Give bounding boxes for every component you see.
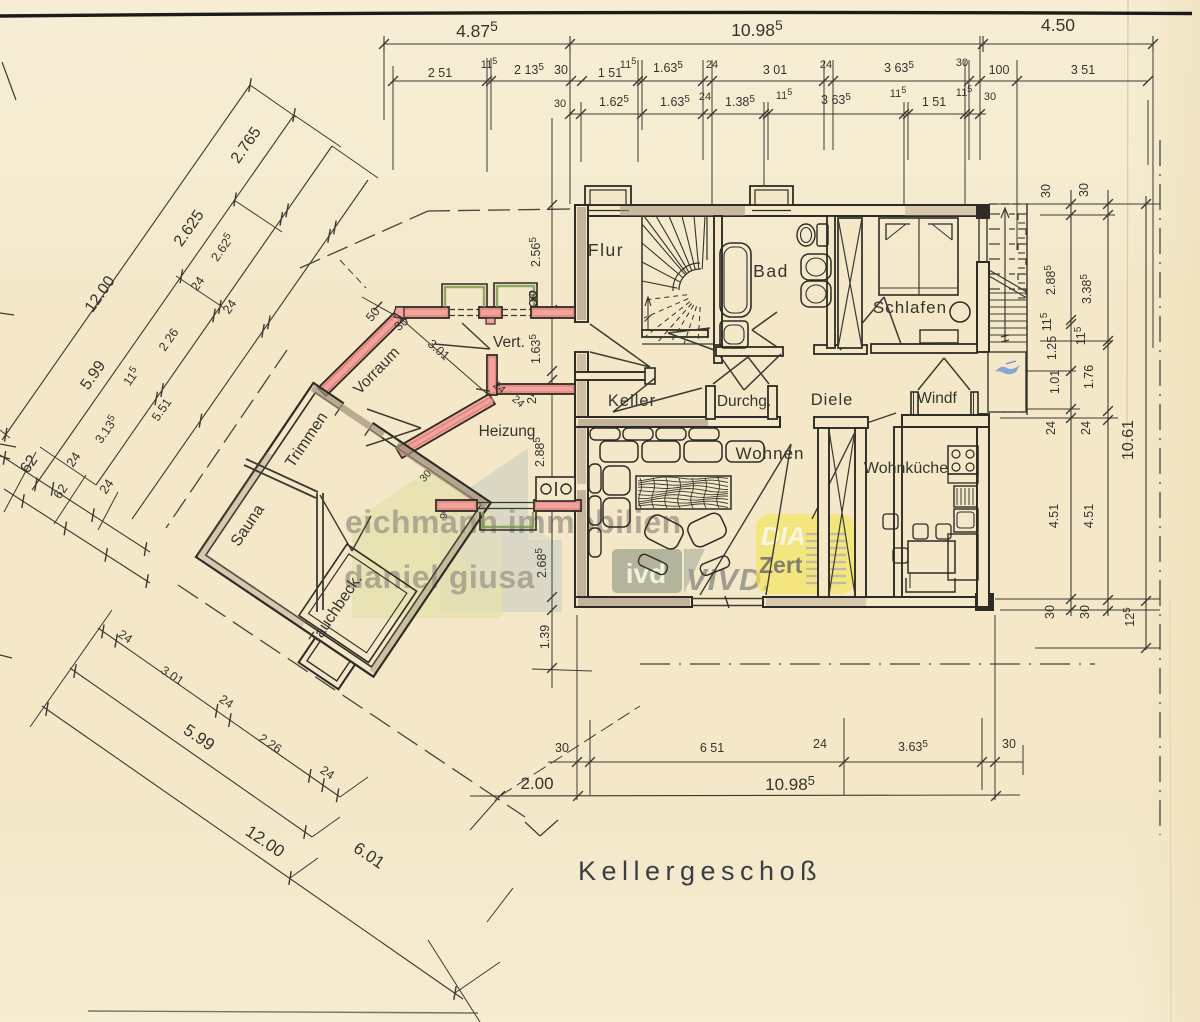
- svg-text:10.985: 10.985: [765, 773, 815, 794]
- svg-text:3 51: 3 51: [1071, 63, 1095, 77]
- svg-text:eichmann immobilien: eichmann immobilien: [345, 504, 682, 540]
- svg-text:24: 24: [1044, 421, 1058, 435]
- svg-text:30: 30: [554, 63, 568, 77]
- svg-text:30: 30: [1077, 183, 1091, 197]
- svg-text:Windf: Windf: [917, 390, 957, 407]
- svg-text:30: 30: [1002, 737, 1016, 751]
- svg-text:100: 100: [989, 63, 1010, 77]
- svg-text:DIA: DIA: [761, 521, 806, 551]
- svg-text:Flur: Flur: [588, 240, 624, 260]
- svg-text:6 51: 6 51: [700, 741, 724, 755]
- svg-text:Wohnen: Wohnen: [735, 444, 804, 463]
- svg-text:Vert.: Vert.: [493, 334, 525, 351]
- svg-text:1.01: 1.01: [1048, 370, 1062, 394]
- svg-text:3 01: 3 01: [763, 63, 787, 77]
- svg-text:1.25: 1.25: [1045, 336, 1059, 360]
- svg-text:Durchg.: Durchg.: [717, 393, 771, 410]
- svg-text:30: 30: [554, 98, 566, 110]
- svg-text:30: 30: [984, 91, 996, 103]
- svg-text:ivd: ivd: [626, 558, 666, 589]
- svg-text:1 51: 1 51: [598, 66, 622, 80]
- svg-text:90: 90: [527, 290, 539, 302]
- svg-text:Heizung: Heizung: [479, 423, 536, 440]
- svg-text:1 51: 1 51: [922, 95, 946, 109]
- svg-text:30: 30: [1078, 605, 1092, 619]
- svg-text:1.76: 1.76: [1082, 365, 1096, 389]
- svg-text:2 51: 2 51: [428, 66, 452, 80]
- svg-text:Schlafen: Schlafen: [873, 298, 947, 317]
- svg-text:2.00: 2.00: [520, 774, 553, 793]
- svg-text:Bad: Bad: [753, 261, 789, 281]
- svg-text:24: 24: [1079, 421, 1093, 435]
- svg-text:Wohnküche: Wohnküche: [864, 460, 948, 477]
- svg-text:30: 30: [555, 741, 569, 755]
- svg-text:4.51: 4.51: [1082, 504, 1096, 528]
- svg-text:24: 24: [699, 91, 711, 103]
- svg-text:Kellergeschoß: Kellergeschoß: [578, 856, 822, 886]
- svg-text:30: 30: [956, 57, 968, 69]
- svg-text:30: 30: [1039, 184, 1053, 198]
- svg-text:Zert: Zert: [759, 552, 803, 578]
- svg-text:1.39: 1.39: [538, 625, 552, 649]
- svg-text:10.61: 10.61: [1120, 420, 1137, 460]
- svg-text:Keller: Keller: [608, 392, 656, 410]
- svg-text:24: 24: [820, 59, 832, 71]
- svg-text:30: 30: [1043, 605, 1057, 619]
- svg-text:4.50: 4.50: [1041, 15, 1075, 35]
- svg-text:4.51: 4.51: [1047, 504, 1061, 528]
- svg-text:24: 24: [813, 737, 827, 751]
- svg-text:Diele: Diele: [811, 391, 854, 409]
